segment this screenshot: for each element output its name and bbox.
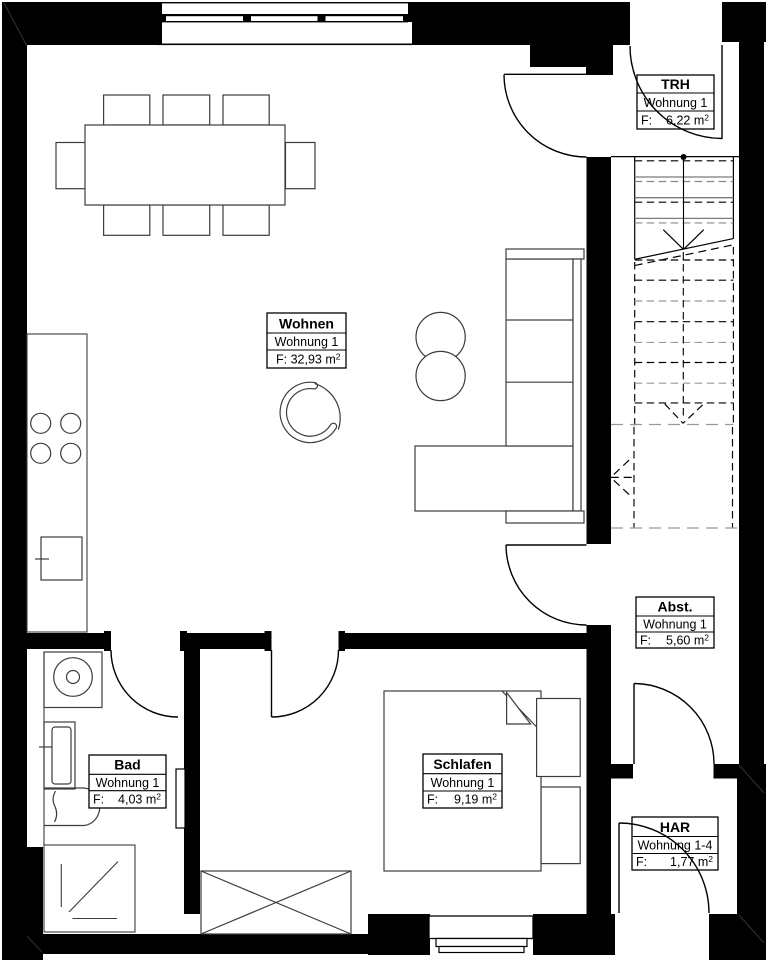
svg-text:5,60 m2: 5,60 m2 xyxy=(666,633,709,648)
svg-text:F:: F: xyxy=(427,793,438,807)
svg-text:F:: F: xyxy=(93,793,104,807)
svg-text:F:: F: xyxy=(636,855,647,869)
svg-text:4,03 m2: 4,03 m2 xyxy=(118,792,161,807)
svg-text:Wohnung 1: Wohnung 1 xyxy=(275,335,339,349)
svg-text:9,19 m2: 9,19 m2 xyxy=(454,792,497,807)
svg-text:Wohnung 1: Wohnung 1 xyxy=(643,618,707,632)
svg-text:Schlafen: Schlafen xyxy=(433,756,491,772)
svg-text:1,77 m2: 1,77 m2 xyxy=(670,854,713,869)
svg-text:F: 32,93 m2: F: 32,93 m2 xyxy=(276,352,341,367)
svg-text:F:: F: xyxy=(640,634,651,648)
svg-text:HAR: HAR xyxy=(660,819,690,835)
svg-text:Wohnung 1-4: Wohnung 1-4 xyxy=(638,839,713,853)
svg-text:Bad: Bad xyxy=(114,757,140,773)
svg-text:TRH: TRH xyxy=(661,76,690,92)
svg-text:6,22 m2: 6,22 m2 xyxy=(666,113,709,128)
svg-text:Abst.: Abst. xyxy=(658,599,693,615)
svg-text:Wohnung 1: Wohnung 1 xyxy=(431,776,495,790)
svg-text:Wohnung 1: Wohnung 1 xyxy=(96,776,160,790)
svg-text:Wohnen: Wohnen xyxy=(279,316,334,332)
svg-text:F:: F: xyxy=(641,114,652,128)
